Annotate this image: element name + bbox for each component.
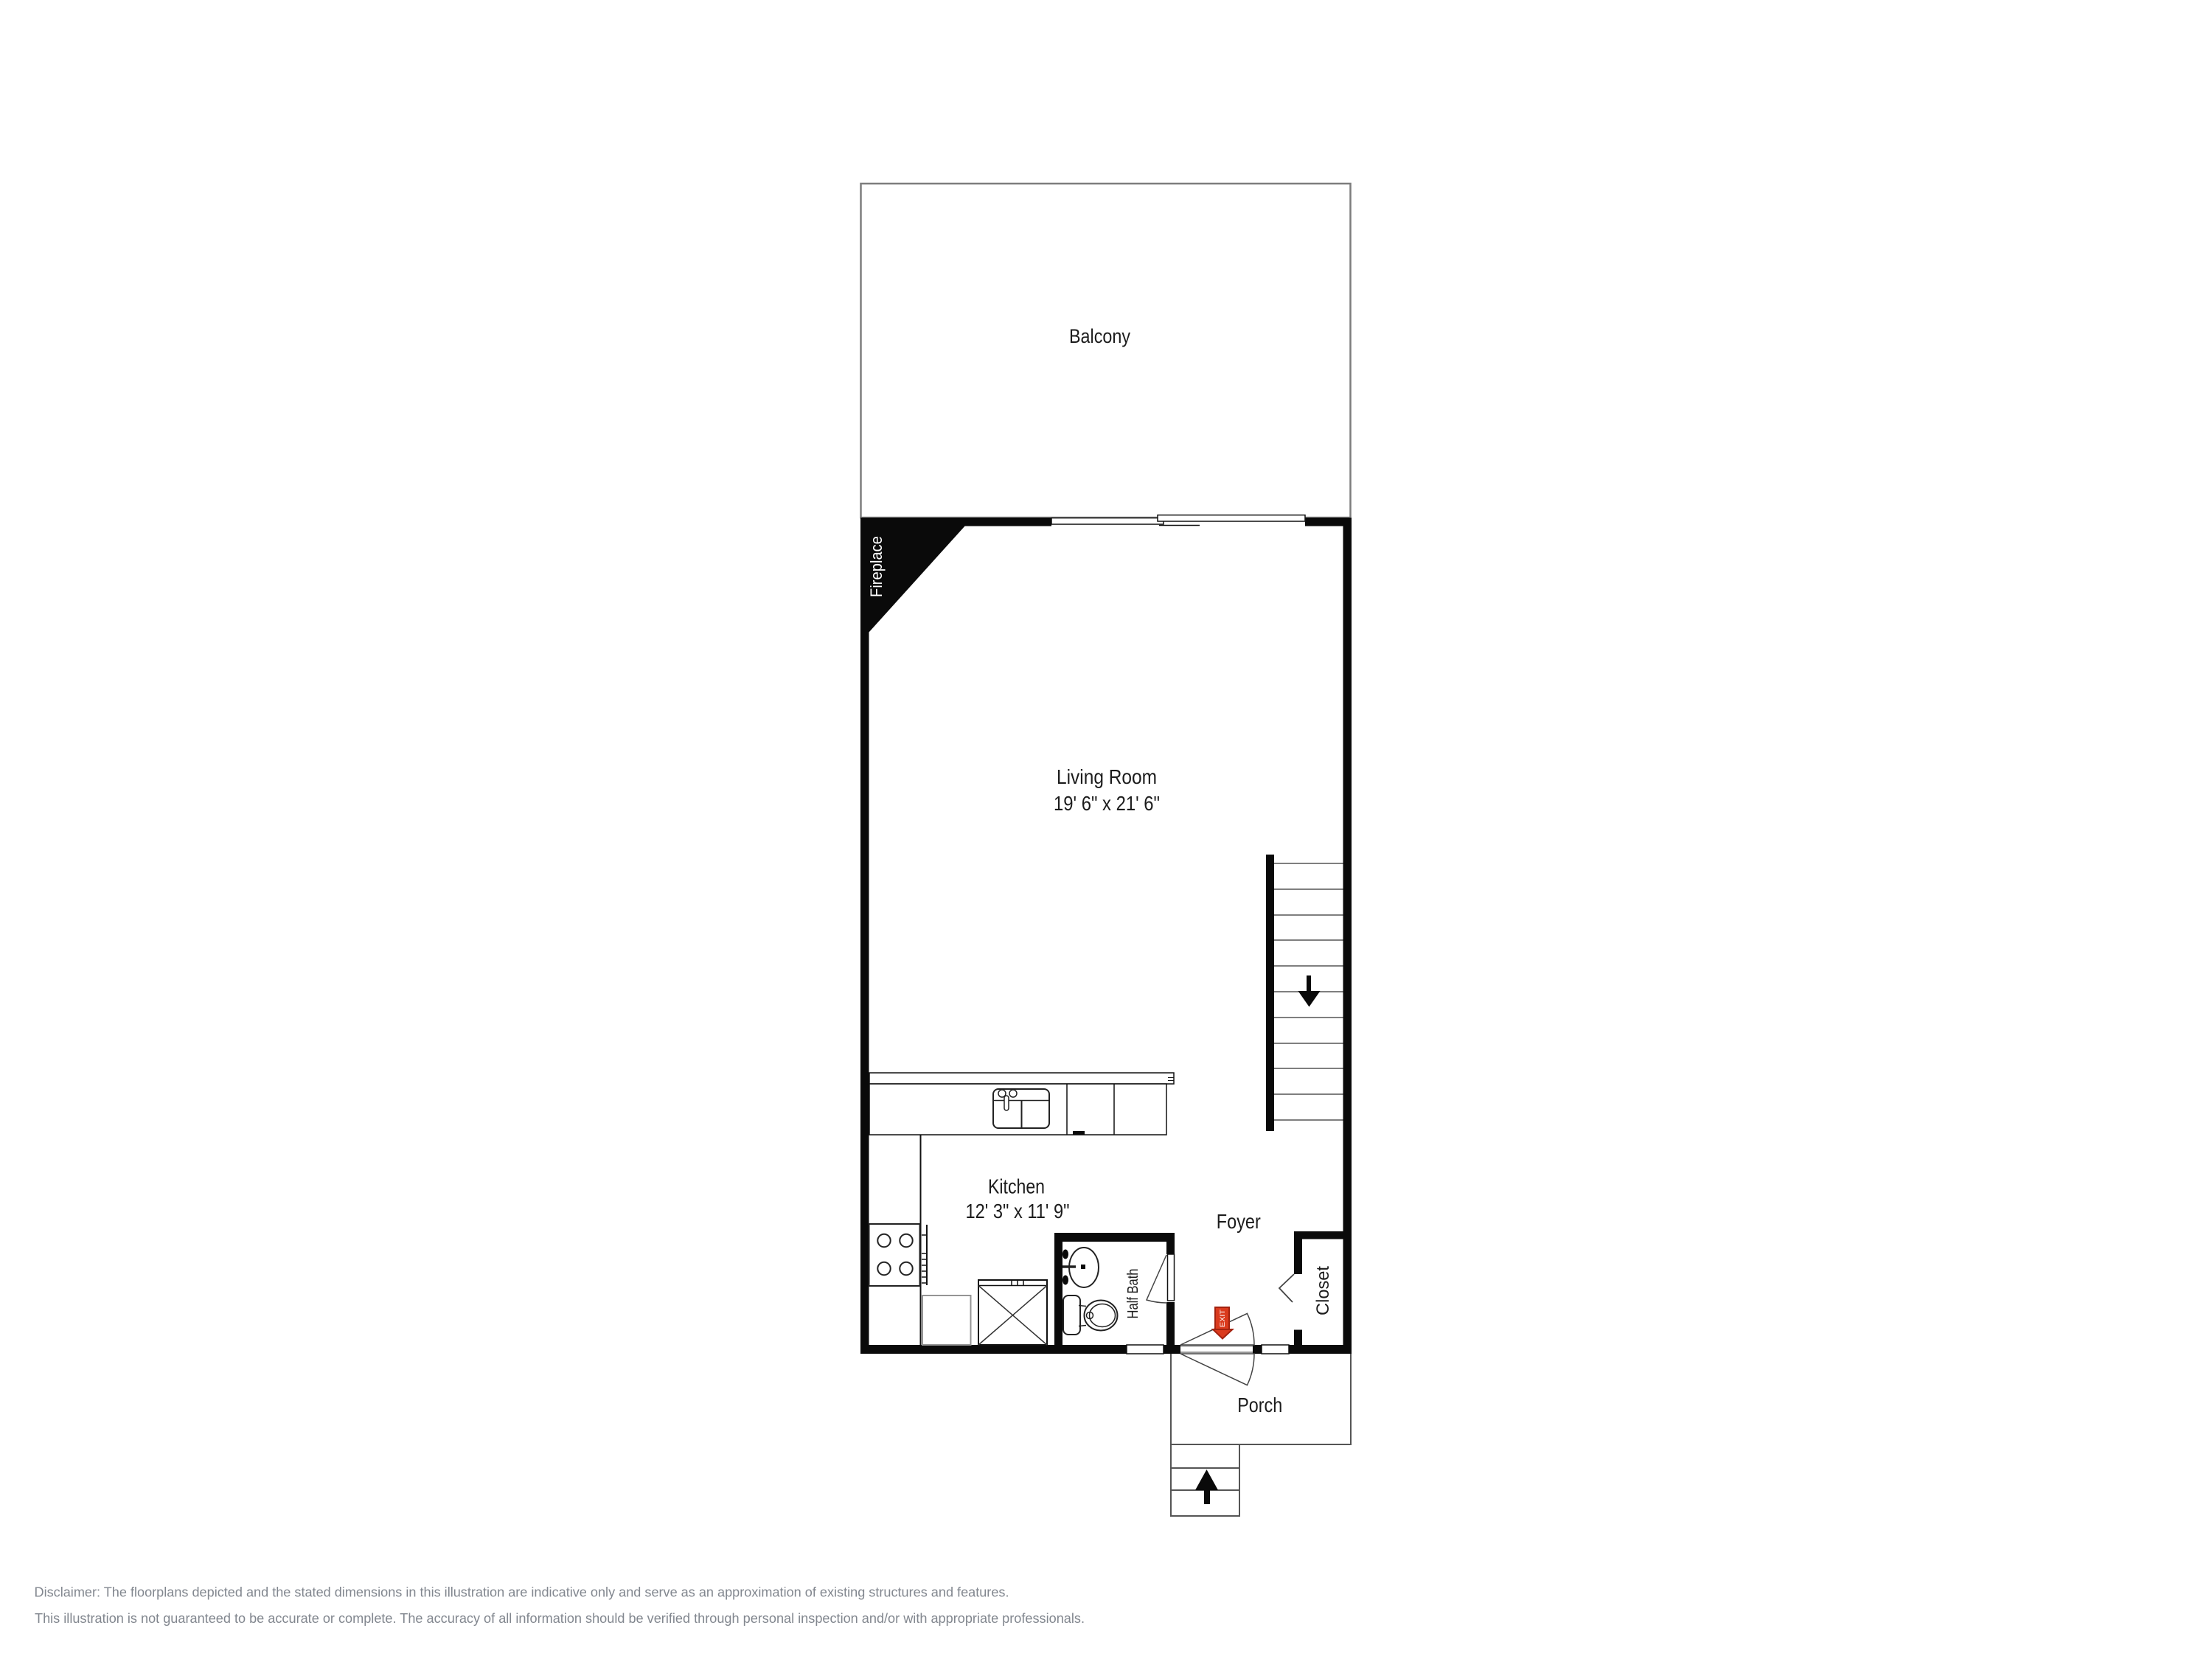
svg-text:Foyer: Foyer bbox=[1217, 1210, 1261, 1233]
svg-text:Disclaimer: The floorplans dep: Disclaimer: The floorplans depicted and … bbox=[35, 1585, 1009, 1600]
svg-text:Half Bath: Half Bath bbox=[1125, 1269, 1141, 1319]
svg-text:Fireplace: Fireplace bbox=[867, 536, 886, 597]
svg-text:Closet: Closet bbox=[1313, 1266, 1333, 1315]
svg-text:EXIT: EXIT bbox=[1219, 1309, 1226, 1327]
svg-text:12' 3" x 11' 9": 12' 3" x 11' 9" bbox=[966, 1200, 1070, 1222]
svg-text:This illustration is not guara: This illustration is not guaranteed to b… bbox=[35, 1610, 1085, 1626]
svg-text:Living Room: Living Room bbox=[1057, 765, 1157, 788]
svg-text:Kitchen: Kitchen bbox=[988, 1175, 1045, 1198]
svg-text:Balcony: Balcony bbox=[1069, 325, 1130, 347]
svg-text:Porch: Porch bbox=[1237, 1394, 1282, 1416]
svg-text:19' 6" x 21' 6": 19' 6" x 21' 6" bbox=[1054, 792, 1160, 815]
